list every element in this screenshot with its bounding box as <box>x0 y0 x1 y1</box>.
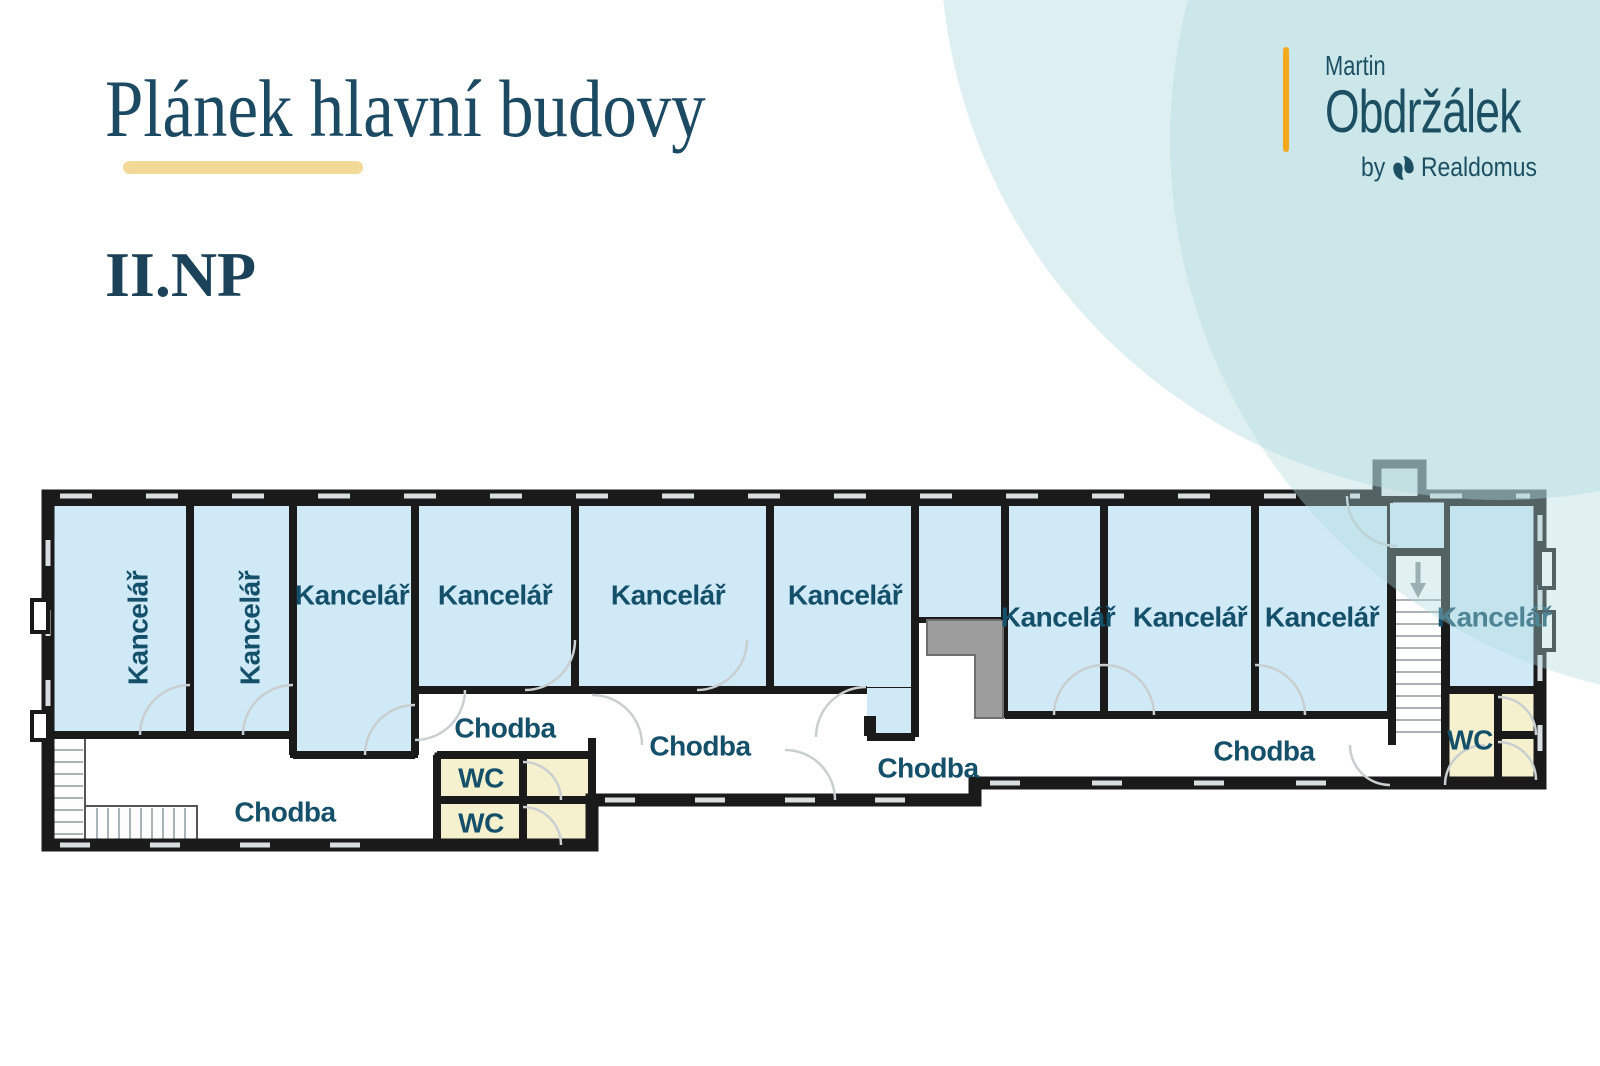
room-label-corridor-3: Chodba <box>649 731 751 762</box>
room-label-office-2: Kancelář <box>235 570 266 685</box>
stair-lobby <box>915 503 1005 620</box>
room-label-corridor-5: Chodba <box>1213 736 1315 767</box>
floor-plan: Kancelář Kancelář Kancelář Kancelář Kanc… <box>0 0 1600 1066</box>
room-label-office-6: Kancelář <box>788 580 903 611</box>
room-label-office-1: Kancelář <box>123 570 154 685</box>
door-jamb <box>864 716 876 736</box>
room-label-wc-1: WC <box>458 763 504 794</box>
service-room-2 <box>523 800 592 845</box>
room-office-3 <box>293 503 415 755</box>
room-label-corridor-4: Chodba <box>877 753 979 784</box>
room-label-office-8: Kancelář <box>1133 602 1248 633</box>
logo-name-large: Obdržálek <box>1325 77 1521 146</box>
logo-by-text: by <box>1361 152 1385 183</box>
room-label-corridor-1: Chodba <box>234 797 336 828</box>
service-room-1 <box>523 755 592 800</box>
room-label-wc-2: WC <box>458 808 504 839</box>
logo-brand-text: Realdomus <box>1421 152 1537 183</box>
room-label-office-9: Kancelář <box>1265 602 1380 633</box>
page-title: Plánek hlavní budovy <box>105 68 706 150</box>
title-underline <box>123 161 363 174</box>
room-label-office-4: Kancelář <box>438 580 553 611</box>
room-office-1 <box>48 503 190 735</box>
room-label-wc-3: WC <box>1447 725 1493 756</box>
floor-label: II.NP <box>105 243 256 307</box>
realdomus-swirl-icon <box>1391 154 1415 182</box>
room-label-office-7: Kancelář <box>1001 602 1116 633</box>
room-label-office-3: Kancelář <box>295 580 410 611</box>
page: Kancelář Kancelář Kancelář Kancelář Kanc… <box>0 0 1600 1066</box>
room-label-office-5: Kancelář <box>611 580 726 611</box>
logo-byline: by Realdomus <box>1361 152 1537 183</box>
logo-accent-bar <box>1283 47 1289 152</box>
room-label-corridor-2: Chodba <box>454 713 556 744</box>
